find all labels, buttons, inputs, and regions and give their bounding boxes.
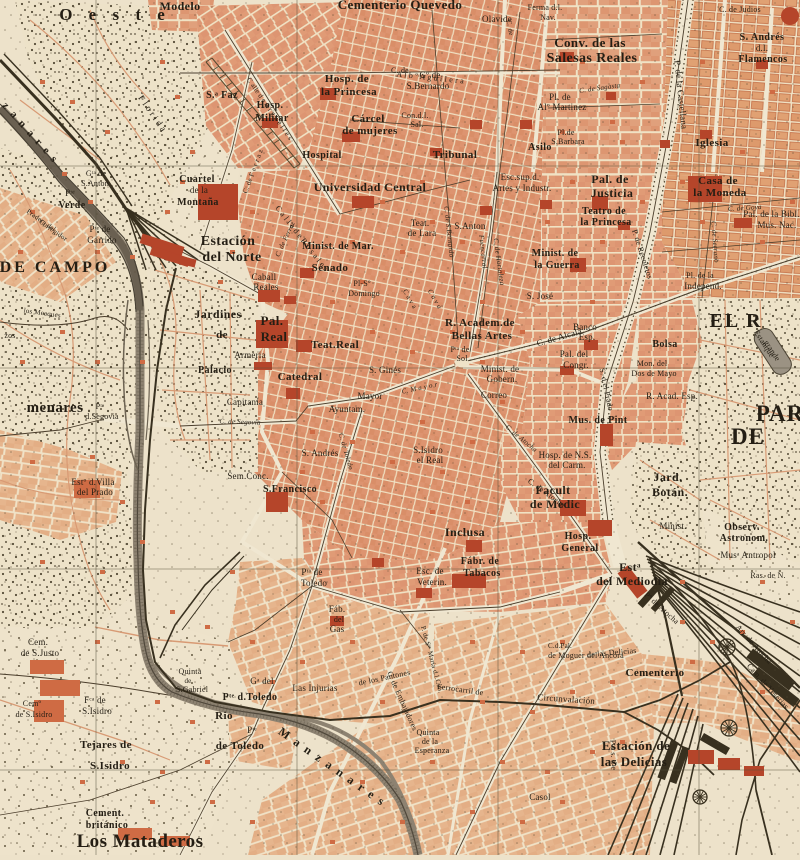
svg-text:Sol: Sol <box>456 354 468 363</box>
svg-text:de la: de la <box>422 737 439 746</box>
svg-text:S.Isidro: S.Isidro <box>413 445 443 455</box>
svg-text:Esc. de: Esc. de <box>416 566 443 576</box>
svg-text:C. de Judios: C. de Judios <box>719 5 761 14</box>
svg-text:Pl.de: Pl.de <box>557 128 574 137</box>
svg-text:Correo: Correo <box>481 390 507 400</box>
svg-text:Caball: Caball <box>252 272 277 282</box>
svg-text:la Guerra: la Guerra <box>534 260 580 271</box>
svg-text:S.Barbara: S.Barbara <box>551 137 585 146</box>
svg-text:Minist. de: Minist. de <box>481 364 520 374</box>
svg-text:Cem.: Cem. <box>28 637 48 647</box>
svg-text:S.Anton: S.Anton <box>454 221 485 231</box>
svg-text:Bellas Artes: Bellas Artes <box>452 330 513 342</box>
svg-text:Pᵗᵉ: Pᵗᵉ <box>65 188 75 198</box>
svg-text:Pᵗᵉ d.Toledo: Pᵗᵉ d.Toledo <box>223 692 278 703</box>
svg-text:Mus. de Pint: Mus. de Pint <box>569 415 628 426</box>
svg-text:Inclusa: Inclusa <box>445 525 485 539</box>
svg-text:Reales: Reales <box>253 282 278 292</box>
svg-text:P a s. d e: P a s. d e <box>608 740 618 771</box>
svg-text:Fáb.: Fáb. <box>329 604 346 614</box>
svg-text:PAR: PAR <box>756 401 800 426</box>
svg-text:S.Anton: S.Anton <box>81 179 109 188</box>
svg-text:Cementerio: Cementerio <box>626 667 685 679</box>
svg-text:Verde: Verde <box>58 200 85 211</box>
svg-text:S. Andrés: S. Andrés <box>302 448 339 458</box>
svg-text:Rio: Rio <box>215 710 233 722</box>
svg-text:Veterin.: Veterin. <box>417 577 447 587</box>
svg-text:Hosp. de: Hosp. de <box>325 73 369 85</box>
svg-text:Sem.Conc.: Sem.Conc. <box>227 471 268 481</box>
svg-text:Modelo: Modelo <box>159 0 200 13</box>
svg-text:Real: Real <box>261 329 288 344</box>
svg-text:S.Francisco: S.Francisco <box>263 484 317 495</box>
svg-text:Iglesia: Iglesia <box>695 137 728 149</box>
svg-text:del Carm.: del Carm. <box>548 460 585 470</box>
svg-text:Hosp.: Hosp. <box>565 531 592 542</box>
svg-text:Capitania: Capitania <box>227 397 263 407</box>
svg-text:británico: británico <box>86 820 129 831</box>
svg-text:DE CAMPO: DE CAMPO <box>0 259 110 276</box>
svg-text:Ayuntam.: Ayuntam. <box>329 404 366 414</box>
svg-text:Musᵃ Antropol: Musᵃ Antropol <box>720 550 776 560</box>
svg-text:Pal.: Pal. <box>261 313 284 328</box>
svg-text:Palacio: Palacio <box>198 365 232 376</box>
svg-text:S. Andrés: S. Andrés <box>740 32 785 43</box>
svg-text:Minist.: Minist. <box>659 521 686 531</box>
svg-text:Gas: Gas <box>330 624 345 634</box>
svg-text:Casa de: Casa de <box>698 175 738 187</box>
svg-text:de: de <box>184 677 191 685</box>
svg-text:Ras. de N.: Ras. de N. <box>750 571 785 580</box>
svg-text:Artes y Industr.: Artes y Industr. <box>493 183 552 193</box>
svg-text:Pal. de: Pal. de <box>591 172 629 186</box>
svg-text:Pᵗᵃ de: Pᵗᵃ de <box>451 345 470 354</box>
svg-text:Fábr. de: Fábr. de <box>461 556 500 567</box>
svg-text:de S.Isidro: de S.Isidro <box>16 710 53 719</box>
svg-text:Sal.: Sal. <box>410 120 423 129</box>
svg-text:Pᵗᵉ: Pᵗᵉ <box>96 402 105 411</box>
svg-text:Nav.: Nav. <box>540 13 556 22</box>
svg-text:Cementerio Quevedo: Cementerio Quevedo <box>338 0 463 12</box>
svg-text:Con.d.l.: Con.d.l. <box>401 111 428 120</box>
svg-text:S.Isidro: S.Isidro <box>82 706 112 716</box>
svg-text:Pl. de: Pl. de <box>549 92 571 102</box>
svg-text:Armeria: Armeria <box>234 350 265 360</box>
svg-text:Quinta: Quinta <box>179 667 202 676</box>
svg-text:DE: DE <box>731 424 765 449</box>
svg-text:Bolsa: Bolsa <box>652 339 677 350</box>
svg-text:Tabacos: Tabacos <box>463 568 500 579</box>
svg-text:del Mediodia: del Mediodia <box>596 574 668 588</box>
svg-text:EL R: EL R <box>709 310 762 332</box>
svg-text:Minist. de: Minist. de <box>532 248 579 259</box>
svg-text:Independ.: Independ. <box>684 281 722 291</box>
svg-text:Casol: Casol <box>529 792 551 802</box>
svg-text:R. Academ.de: R. Academ.de <box>445 317 515 329</box>
svg-text:Los Mataderos: Los Mataderos <box>77 831 204 852</box>
svg-text:Gobern.: Gobern. <box>487 374 518 384</box>
svg-text:S.Gabriel: S.Gabriel <box>176 685 209 694</box>
svg-text:Tribunal: Tribunal <box>433 149 478 161</box>
svg-text:Estᵃ: Estᵃ <box>619 560 641 574</box>
svg-text:zos: zos <box>4 331 15 340</box>
svg-text:Pᵗᵃ de: Pᵗᵃ de <box>301 567 322 577</box>
svg-text:Montaña: Montaña <box>177 197 219 208</box>
svg-text:Pal. del: Pal. del <box>560 349 589 359</box>
svg-text:Estación: Estación <box>201 234 256 249</box>
svg-text:Las Injurias: Las Injurias <box>292 683 337 693</box>
svg-text:Teatro de: Teatro de <box>582 206 626 217</box>
svg-text:Cemº: Cemº <box>23 699 42 708</box>
svg-text:Esc.sup.d.: Esc.sup.d. <box>501 172 540 182</box>
svg-text:el Real: el Real <box>417 455 444 465</box>
svg-text:Teat.: Teat. <box>411 218 430 228</box>
svg-text:General: General <box>561 543 598 554</box>
svg-text:Tejares de: Tejares de <box>80 739 132 751</box>
svg-text:C.d.Pal.: C.d.Pal. <box>548 642 572 650</box>
svg-text:Ferma d.l.: Ferma d.l. <box>528 3 563 12</box>
svg-text:Jardines: Jardines <box>194 307 241 321</box>
svg-text:del: del <box>334 615 345 624</box>
svg-text:Alº Martinez: Alº Martinez <box>538 102 587 112</box>
svg-text:Justicia: Justicia <box>591 186 634 200</box>
svg-text:la Moneda: la Moneda <box>693 187 747 199</box>
svg-text:Mayor: Mayor <box>358 391 383 401</box>
svg-text:Universidad Central: Universidad Central <box>314 180 427 194</box>
svg-text:d.Segovia: d.Segovia <box>85 412 119 421</box>
svg-text:Gᵗᵃ de: Gᵗᵃ de <box>86 169 106 178</box>
svg-text:Pl. de la: Pl. de la <box>686 271 714 280</box>
svg-text:de Lara: de Lara <box>408 228 437 238</box>
svg-text:Gᵃ del: Gᵃ del <box>250 676 274 686</box>
svg-text:del Norte: del Norte <box>202 250 261 265</box>
svg-text:de: de <box>216 329 228 341</box>
svg-text:Garrido: Garrido <box>87 235 117 245</box>
svg-text:R. Acad. Esp.: R. Acad. Esp. <box>646 391 698 401</box>
svg-text:Teat.Real: Teat.Real <box>311 339 359 351</box>
svg-text:de S.Justo: de S.Justo <box>21 648 60 658</box>
svg-text:Flamencos: Flamencos <box>738 54 787 65</box>
svg-text:Catedral: Catedral <box>278 371 323 383</box>
svg-text:Hospital: Hospital <box>302 150 341 161</box>
svg-text:Congr.: Congr. <box>563 360 588 370</box>
svg-text:Cárcel: Cárcel <box>351 113 384 125</box>
svg-text:Conv. de las: Conv. de las <box>554 35 626 50</box>
svg-text:Cuartel: Cuartel <box>179 174 215 185</box>
svg-text:S. Ginés: S. Ginés <box>369 365 401 375</box>
svg-text:Salesas Reales: Salesas Reales <box>547 51 638 66</box>
svg-text:Domingo: Domingo <box>348 289 380 298</box>
svg-text:Botán.: Botán. <box>652 485 688 499</box>
svg-text:S.ᵃ Faz: S.ᵃ Faz <box>206 90 238 101</box>
svg-text:Jard.: Jard. <box>654 470 683 484</box>
svg-text:del Prado: del Prado <box>77 487 113 497</box>
svg-text:Pl-Sº: Pl-Sº <box>353 279 371 288</box>
svg-text:Mus. Nac.: Mus. Nac. <box>757 220 796 230</box>
svg-text:Hosp. de N.S.: Hosp. de N.S. <box>539 450 592 460</box>
svg-text:S. José: S. José <box>527 291 553 301</box>
svg-text:Mon. del: Mon. del <box>637 359 668 368</box>
svg-text:S.Isidro: S.Isidro <box>90 760 130 772</box>
svg-text:de mujeres: de mujeres <box>342 125 398 137</box>
svg-text:Fᶜᵃ de: Fᶜᵃ de <box>84 695 106 705</box>
svg-text:Asilo: Asilo <box>528 142 552 153</box>
svg-text:Quinta: Quinta <box>417 728 440 737</box>
svg-text:Cement.: Cement. <box>86 808 125 819</box>
svg-text:Astronom.: Astronom. <box>720 533 769 544</box>
svg-text:Pᵗᵉ de: Pᵗᵉ de <box>90 224 111 234</box>
svg-text:Esperanza: Esperanza <box>415 746 450 755</box>
svg-text:la Princesa: la Princesa <box>580 217 631 228</box>
svg-text:de Toledo: de Toledo <box>216 740 265 752</box>
svg-text:Toledo: Toledo <box>301 578 327 588</box>
svg-text:O e s t e: O e s t e <box>59 5 171 24</box>
svg-text:C. de Segovia: C. de Segovia <box>219 417 261 426</box>
svg-text:de la: de la <box>190 185 208 195</box>
svg-text:Estº d.Villa: Estº d.Villa <box>71 477 114 487</box>
svg-text:Pᵗᵉ: Pᵗᵉ <box>247 725 257 735</box>
svg-text:d.l.: d.l. <box>756 43 768 53</box>
svg-text:Observ.: Observ. <box>724 522 760 533</box>
svg-text:Dos de Mayo: Dos de Mayo <box>631 369 676 378</box>
svg-text:menares: menares <box>27 400 84 416</box>
svg-text:la Princesa: la Princesa <box>321 86 377 98</box>
